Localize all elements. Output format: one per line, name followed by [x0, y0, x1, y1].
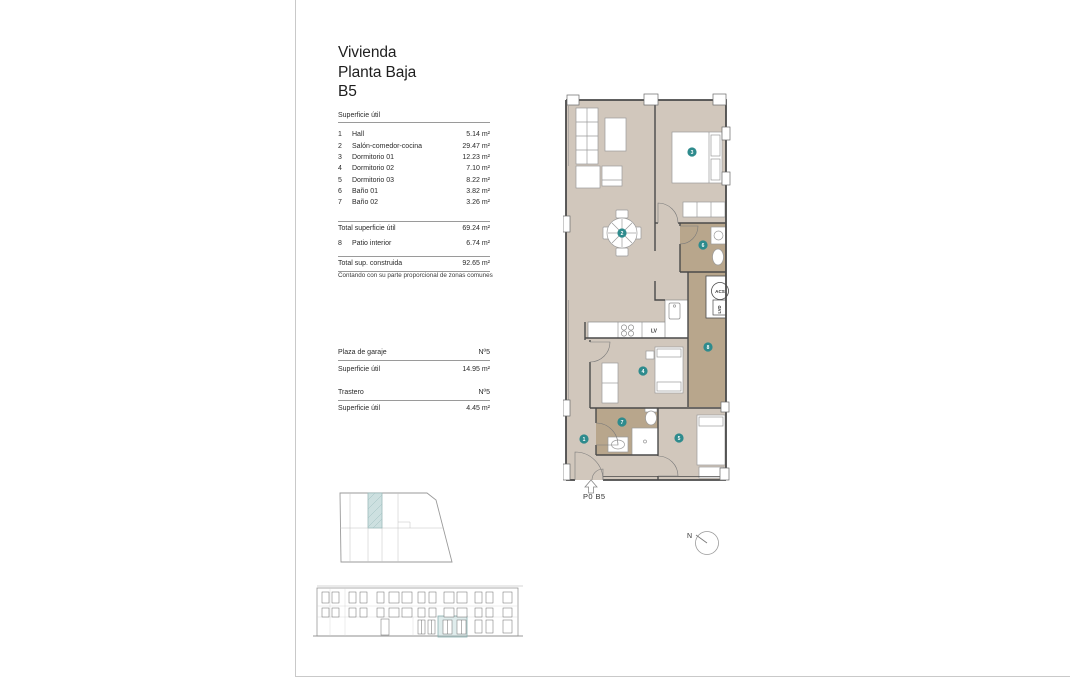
garage-area-row: Superficie útil 14.95 m²	[338, 366, 490, 373]
ground-floor-windows	[381, 619, 512, 635]
table-row: 1 Hall 5.14 m²	[338, 129, 490, 140]
dishwasher-label: LV	[651, 328, 658, 334]
table-row: 6 Baño 01 3.82 m²	[338, 186, 490, 197]
surface-note: Contando con su parte proporcional de zo…	[338, 272, 496, 279]
room-marker-dorm3: 5	[674, 433, 683, 442]
sofa	[576, 108, 598, 164]
floor-plan: ACS LVD LV	[563, 86, 733, 498]
svg-text:5: 5	[678, 436, 681, 442]
table-row: 4 Dormitorio 02 7.10 m²	[338, 163, 490, 174]
building-outline	[340, 493, 452, 562]
table-row: 7 Baño 02 3.26 m²	[338, 197, 490, 208]
svg-text:2: 2	[621, 231, 624, 237]
shower	[632, 428, 658, 455]
bed-double	[672, 132, 722, 183]
surface-table: 1 Hall 5.14 m² 2 Salón-comedor-cocina 29…	[338, 129, 490, 208]
room-marker-hall: 1	[579, 434, 588, 443]
tv-bench	[602, 166, 622, 186]
table-row: 5 Dormitorio 03 8.22 m²	[338, 174, 490, 185]
svg-text:6: 6	[702, 243, 705, 249]
total-util-row: Total superficie útil 69.24 m²	[338, 221, 490, 232]
svg-text:8: 8	[707, 345, 710, 351]
upper-floor-windows	[322, 592, 512, 617]
wardrobe	[602, 363, 618, 403]
room-marker-salon: 2	[617, 228, 626, 237]
coffee-table	[605, 118, 626, 151]
title-line-3: B5	[338, 82, 416, 102]
trastero-area-row: Superficie útil 4.45 m²	[338, 405, 490, 412]
page-edge-bottom	[295, 676, 1070, 677]
garage-row: Plaza de garaje Nº5	[338, 349, 490, 361]
trastero-row: Trastero Nº5	[338, 389, 490, 401]
total-built-row: Total sup. construida 92.65 m²	[338, 256, 490, 272]
room-marker-dorm2: 4	[638, 366, 647, 375]
room-marker-dorm1: 3	[687, 147, 696, 156]
toilet	[713, 249, 724, 265]
table-row: 2 Salón-comedor-cocina 29.47 m²	[338, 140, 490, 151]
surface-table-header: Superficie útil	[338, 112, 490, 123]
table-row: 3 Dormitorio 01 12.23 m²	[338, 152, 490, 163]
side-table	[576, 166, 600, 188]
svg-text:3: 3	[691, 150, 694, 156]
bed-single	[697, 415, 725, 465]
wardrobe	[683, 202, 725, 217]
title-line-2: Planta Baja	[338, 63, 416, 83]
title-line-1: Vivienda	[338, 43, 416, 63]
plan-code-label: P0 B5	[583, 492, 605, 501]
svg-text:4: 4	[642, 369, 645, 375]
nightstand	[646, 351, 654, 359]
page-edge-left	[295, 0, 296, 676]
sink	[711, 227, 726, 244]
acs-label: ACS	[715, 289, 725, 294]
svg-text:7: 7	[621, 420, 624, 426]
kitchen-sink	[669, 303, 680, 319]
room-marker-patio: 8	[703, 342, 712, 351]
room-marker-bath1: 6	[698, 240, 707, 249]
svg-text:1: 1	[583, 437, 586, 443]
site-key-plan	[330, 486, 460, 570]
compass-north-label: N	[687, 533, 692, 540]
compass-needle	[696, 535, 707, 543]
toilet	[645, 408, 657, 425]
unit-highlight	[368, 493, 382, 528]
page: Vivienda Planta Baja B5 Superficie útil …	[0, 0, 1070, 682]
bed-single	[655, 347, 683, 393]
entrance-door	[381, 619, 389, 635]
lvd-label: LVD	[717, 305, 722, 313]
patio-row: 8 Patio interior 6.74 m²	[338, 240, 490, 247]
building-elevation	[305, 578, 530, 653]
compass: N	[683, 522, 727, 562]
page-title: Vivienda Planta Baja B5	[338, 43, 416, 102]
room-marker-bath2: 7	[617, 417, 626, 426]
